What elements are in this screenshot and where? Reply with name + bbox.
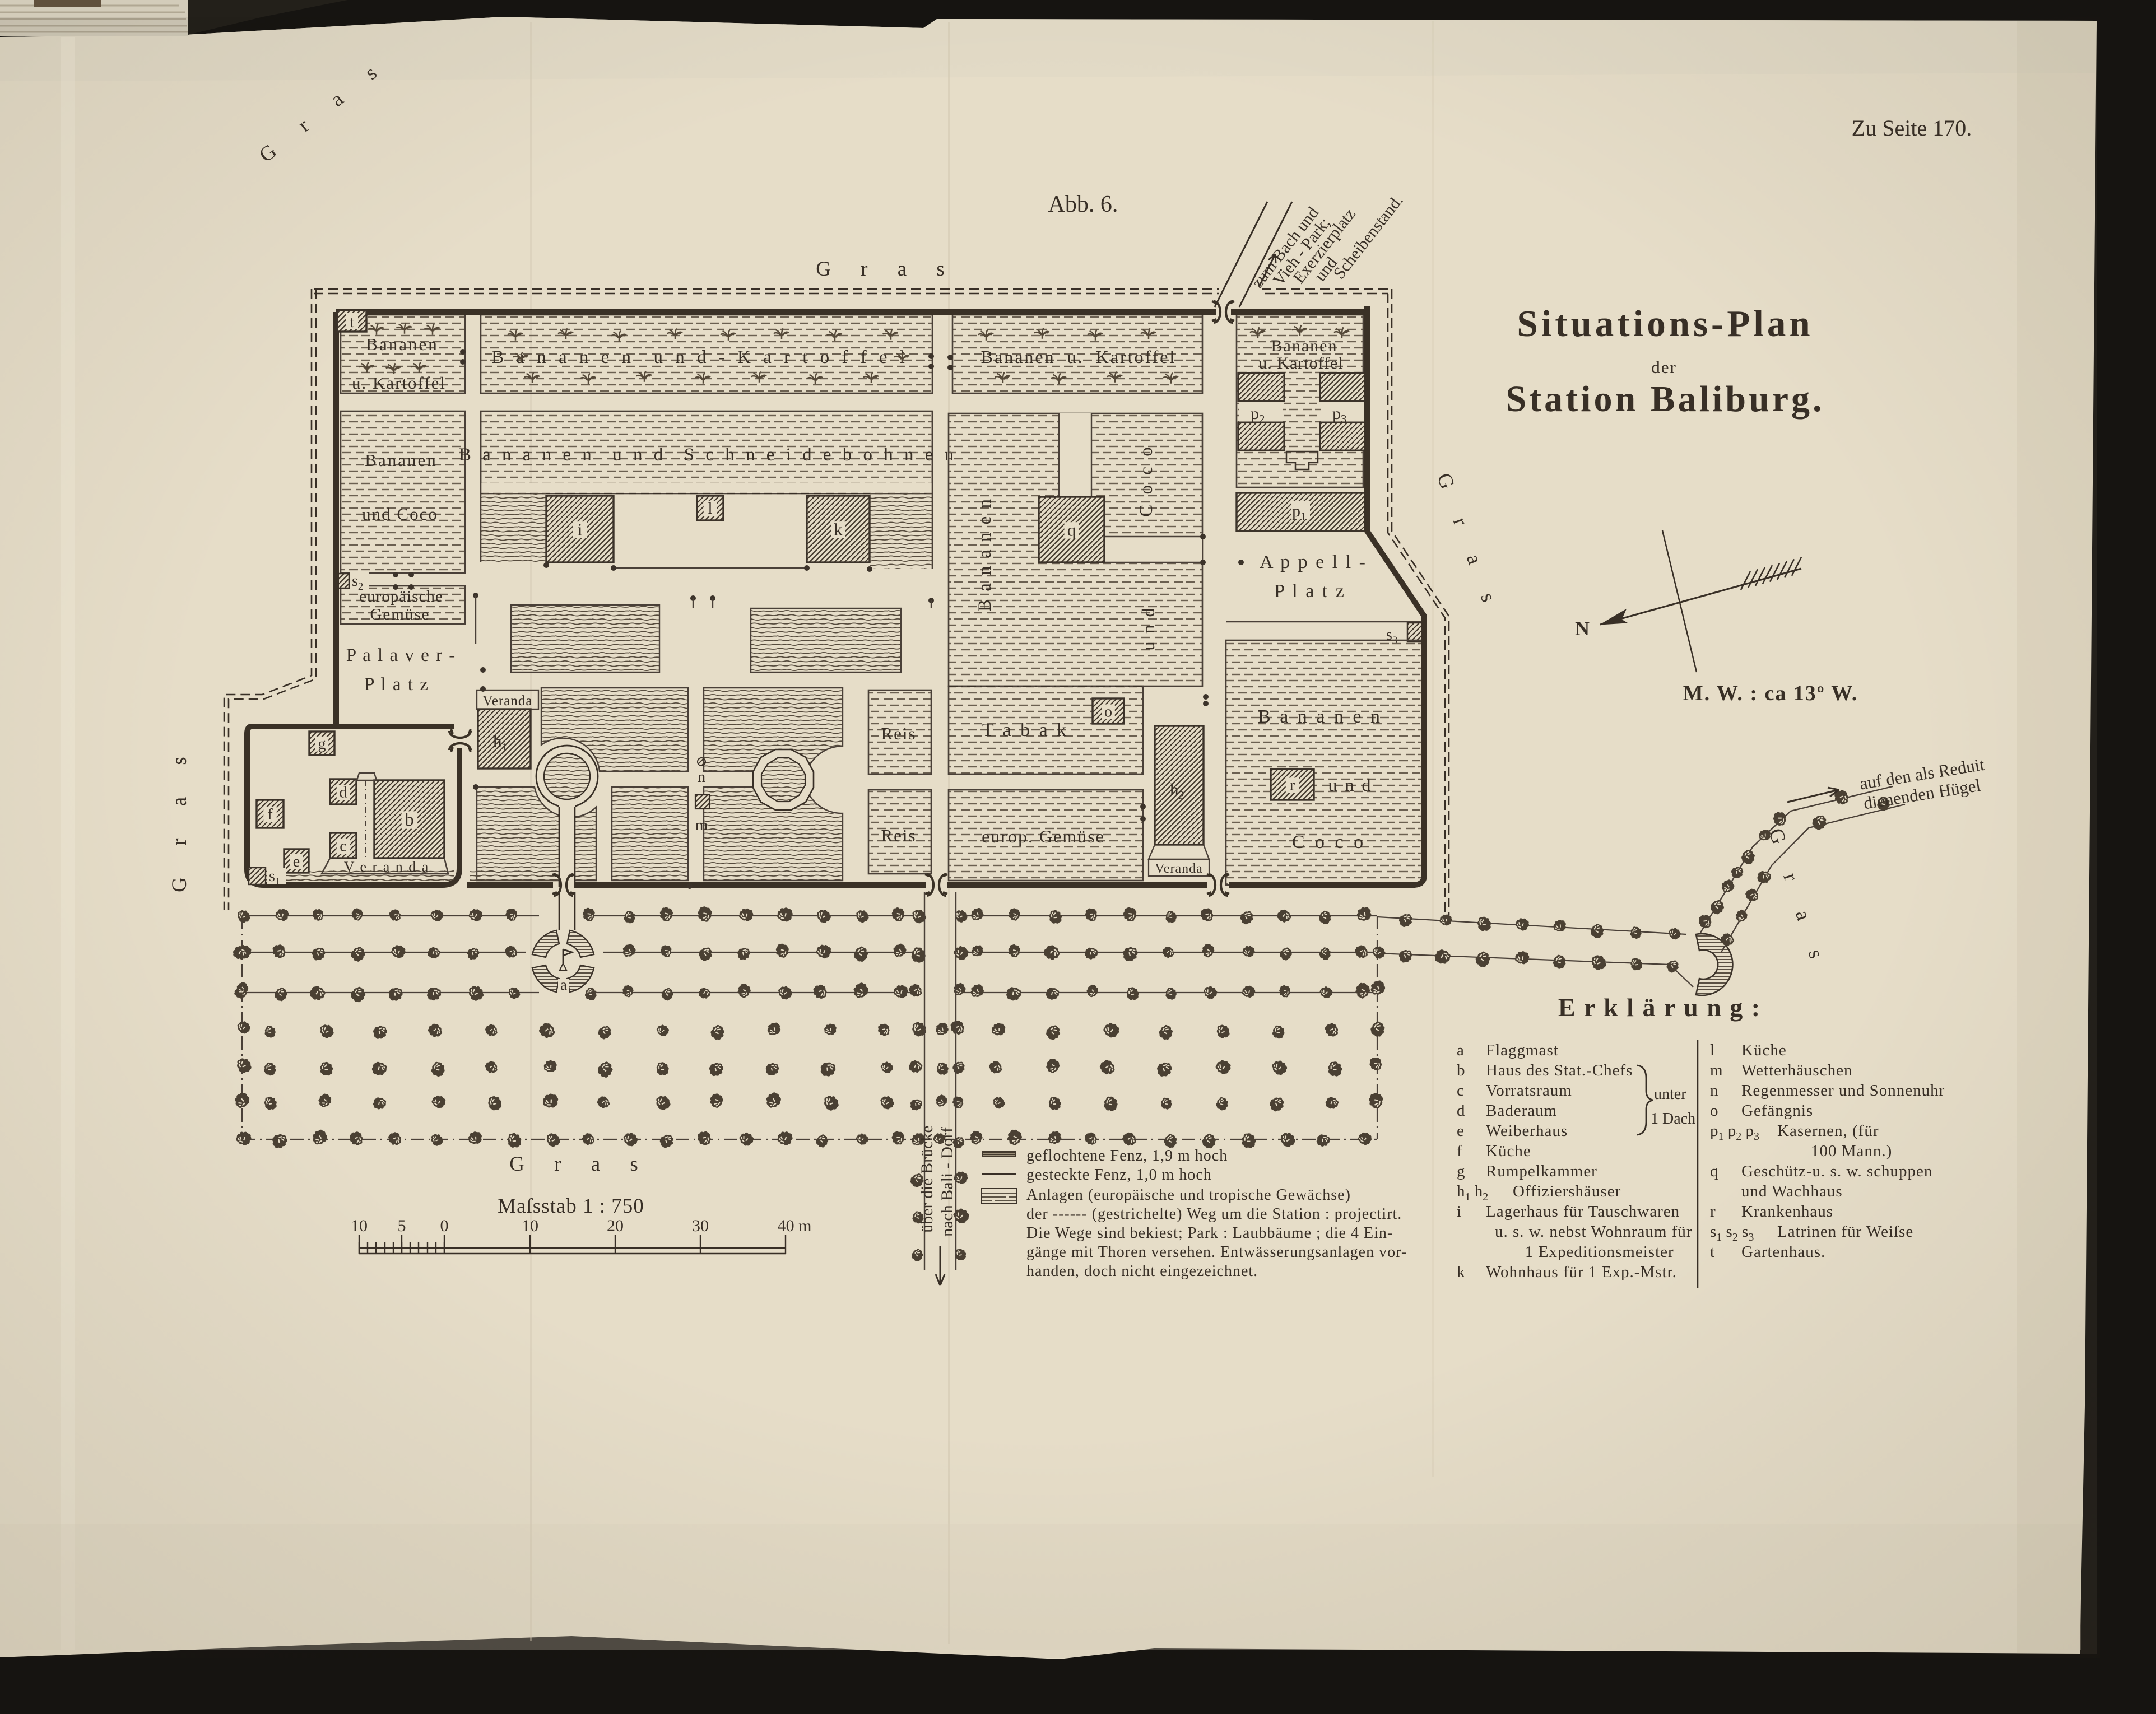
svg-text:a: a	[560, 976, 567, 993]
svg-text:gesteckte Fenz, 1,0 m hoch: gesteckte Fenz, 1,0 m hoch	[1026, 1166, 1212, 1184]
svg-text:der ------ (gestrichelte) Weg: der ------ (gestrichelte) Weg um die Sta…	[1026, 1205, 1402, 1223]
svg-text:europäische: europäische	[359, 588, 443, 606]
svg-text:Geschütz-u. s. w. schuppen: Geschütz-u. s. w. schuppen	[1741, 1162, 1932, 1180]
svg-text:und Coco: und Coco	[362, 504, 438, 524]
svg-text:geflochtene Fenz, 1,9 m hoch: geflochtene Fenz, 1,9 m hoch	[1026, 1147, 1228, 1165]
svg-text:Situations-Plan: Situations-Plan	[1517, 303, 1813, 344]
svg-text:c: c	[1457, 1082, 1464, 1100]
svg-text:G r a s: G r a s	[509, 1153, 650, 1176]
svg-text:Bananen: Bananen	[366, 334, 438, 354]
svg-text:Krankenhaus: Krankenhaus	[1741, 1203, 1833, 1221]
svg-text:10: 10	[522, 1217, 538, 1235]
svg-text:d: d	[1457, 1102, 1465, 1120]
svg-text:n: n	[1710, 1082, 1718, 1100]
svg-text:f: f	[1457, 1142, 1462, 1160]
svg-text:u n d: u n d	[1138, 607, 1158, 651]
svg-text:über die Brücke: über die Brücke	[918, 1125, 936, 1233]
svg-text:B a n a n e n u n d S c h n: B a n a n e n u n d S c h n e i d e b o …	[459, 445, 955, 465]
svg-text:Bananen u. Kartoffel: Bananen u. Kartoffel	[981, 347, 1177, 367]
svg-text:und Wachhaus: und Wachhaus	[1741, 1182, 1843, 1200]
svg-text:q: q	[1710, 1162, 1718, 1180]
svg-text:b: b	[405, 810, 414, 830]
svg-text:P l a t z: P l a t z	[364, 674, 429, 695]
svg-text:n: n	[698, 768, 706, 786]
svg-text:Offiziershäuser: Offiziershäuser	[1513, 1182, 1621, 1200]
svg-text:d: d	[340, 784, 347, 801]
svg-text:b: b	[1457, 1061, 1465, 1079]
svg-text:B a n a n e n u n d - K a r t: B a n a n e n u n d - K a r t o f f e l	[491, 347, 907, 367]
svg-text:u n d: u n d	[1328, 775, 1373, 795]
svg-text:Kasernen, (für: Kasernen, (für	[1777, 1122, 1879, 1140]
svg-text:1 Expeditionsmeister: 1 Expeditionsmeister	[1525, 1243, 1674, 1261]
svg-text:B a n a n e n: B a n a n e n	[975, 497, 995, 612]
svg-text:r: r	[1290, 776, 1295, 794]
svg-text:Veranda: Veranda	[483, 693, 533, 709]
svg-text:20: 20	[607, 1217, 624, 1235]
svg-text:B a n a n e n: B a n a n e n	[1258, 706, 1382, 727]
svg-text:u. s. w. nebst Wohnraum für: u. s. w. nebst Wohnraum für	[1495, 1223, 1693, 1241]
svg-text:nach Bali - Dorf: nach Bali - Dorf	[938, 1127, 956, 1237]
svg-text:Küche: Küche	[1741, 1041, 1787, 1059]
svg-text:i: i	[1457, 1203, 1461, 1221]
svg-text:e: e	[1457, 1122, 1464, 1140]
svg-text:l: l	[708, 500, 713, 518]
svg-text:Haus des Stat.-Chefs: Haus des Stat.-Chefs	[1486, 1061, 1633, 1079]
svg-text:q: q	[1067, 520, 1076, 539]
svg-text:m: m	[1710, 1061, 1723, 1079]
svg-text:u. Kartoffel: u. Kartoffel	[352, 373, 446, 393]
svg-text:P l a t z: P l a t z	[1274, 581, 1346, 602]
svg-text:V e r a n d a: V e r a n d a	[344, 859, 430, 875]
svg-text:o: o	[1104, 703, 1112, 720]
svg-text:E r k l ä r u n g :: E r k l ä r u n g :	[1558, 993, 1761, 1022]
svg-text:Bananen: Bananen	[1271, 337, 1338, 355]
svg-text:40 m: 40 m	[778, 1217, 812, 1235]
svg-text:Baderaum: Baderaum	[1486, 1102, 1557, 1120]
svg-text:gänge mit Thoren versehen. En: gänge mit Thoren versehen. Entwässerungs…	[1026, 1243, 1407, 1261]
svg-text:r: r	[1710, 1203, 1716, 1221]
svg-text:Die Wege sind bekiest; Park: Die Wege sind bekiest; Park : Laubbäume …	[1026, 1224, 1393, 1242]
svg-text:Vorratsraum: Vorratsraum	[1486, 1082, 1572, 1100]
svg-text:k: k	[834, 519, 843, 539]
svg-text:C o c o: C o c o	[1136, 444, 1156, 516]
svg-text:i: i	[578, 519, 583, 539]
svg-text:Wohnhaus für 1 Exp.-Mstr.: Wohnhaus für 1 Exp.-Mstr.	[1486, 1263, 1677, 1281]
svg-text:Lagerhaus für Tauschwaren: Lagerhaus für Tauschwaren	[1486, 1203, 1680, 1221]
svg-text:l: l	[1710, 1041, 1714, 1059]
svg-text:Veranda: Veranda	[1155, 861, 1203, 876]
svg-text:o: o	[1710, 1102, 1718, 1120]
svg-text:g: g	[1457, 1162, 1465, 1180]
svg-text:e: e	[293, 853, 300, 870]
svg-text:T a b a k: T a b a k	[982, 720, 1068, 740]
svg-text:Bananen: Bananen	[365, 450, 437, 470]
svg-text:unter: unter	[1654, 1086, 1686, 1103]
svg-text:der: der	[1651, 357, 1677, 377]
svg-text:Flaggmast: Flaggmast	[1486, 1041, 1559, 1059]
svg-text:k: k	[1457, 1263, 1465, 1281]
svg-text:Regenmesser und Sonnenuhr: Regenmesser und Sonnenuhr	[1741, 1082, 1945, 1100]
svg-text:0: 0	[440, 1217, 449, 1235]
svg-text:10: 10	[351, 1217, 368, 1235]
svg-text:5: 5	[398, 1217, 406, 1235]
svg-text:Gefängnis: Gefängnis	[1741, 1102, 1813, 1120]
svg-text:Station Baliburg.: Station Baliburg.	[1506, 379, 1824, 420]
svg-text:p1 p2 p3: p1 p2 p3	[1710, 1122, 1759, 1143]
svg-text:Weiberhaus: Weiberhaus	[1486, 1122, 1568, 1140]
svg-text:30: 30	[692, 1217, 709, 1235]
svg-text:t: t	[1710, 1243, 1714, 1261]
svg-text:Latrinen für Weiſse: Latrinen für Weiſse	[1777, 1223, 1913, 1241]
svg-text:Küche: Küche	[1486, 1142, 1531, 1160]
svg-text:Gemüse: Gemüse	[370, 606, 430, 623]
svg-text:Reis: Reis	[881, 724, 916, 743]
svg-text:g: g	[318, 735, 326, 753]
svg-text:G r a s: G r a s	[816, 258, 957, 281]
svg-text:u. Kartoffel: u. Kartoffel	[1258, 354, 1343, 372]
svg-text:Gartenhaus.: Gartenhaus.	[1741, 1243, 1825, 1261]
svg-text:a: a	[1457, 1041, 1464, 1059]
svg-text:europ. Gemüse: europ. Gemüse	[982, 826, 1105, 846]
svg-text:Zu Seite 170.: Zu Seite 170.	[1852, 115, 1972, 141]
svg-text:c: c	[340, 837, 346, 855]
svg-text:t: t	[350, 314, 354, 331]
svg-text:C o c o: C o c o	[1292, 832, 1366, 853]
svg-text:Maſsstab 1 : 750: Maſsstab 1 : 750	[498, 1195, 644, 1218]
svg-text:Rumpelkammer: Rumpelkammer	[1486, 1162, 1597, 1180]
svg-text:handen, doch nicht eingezeichn: handen, doch nicht eingezeichnet.	[1026, 1263, 1258, 1280]
svg-text:m: m	[695, 816, 708, 834]
svg-text:A p p e l l -: A p p e l l -	[1260, 552, 1367, 572]
svg-text:G r a s: G r a s	[168, 743, 191, 892]
svg-text:1 Dach: 1 Dach	[1651, 1110, 1695, 1128]
svg-text:Abb. 6.: Abb. 6.	[1048, 192, 1118, 217]
svg-text:Reis: Reis	[881, 826, 916, 845]
svg-text:N: N	[1575, 617, 1590, 640]
svg-text:P a l a v e r -: P a l a v e r -	[346, 645, 456, 665]
svg-text:100 Mann.): 100 Mann.)	[1811, 1142, 1892, 1160]
svg-text:Anlagen (europäische und tropi: Anlagen (europäische und tropische Gewäc…	[1026, 1186, 1351, 1204]
svg-text:Wetterhäuschen: Wetterhäuschen	[1741, 1061, 1852, 1079]
svg-text:f: f	[267, 806, 273, 823]
svg-text:M. W. : ca 13º W.: M. W. : ca 13º W.	[1683, 682, 1858, 705]
